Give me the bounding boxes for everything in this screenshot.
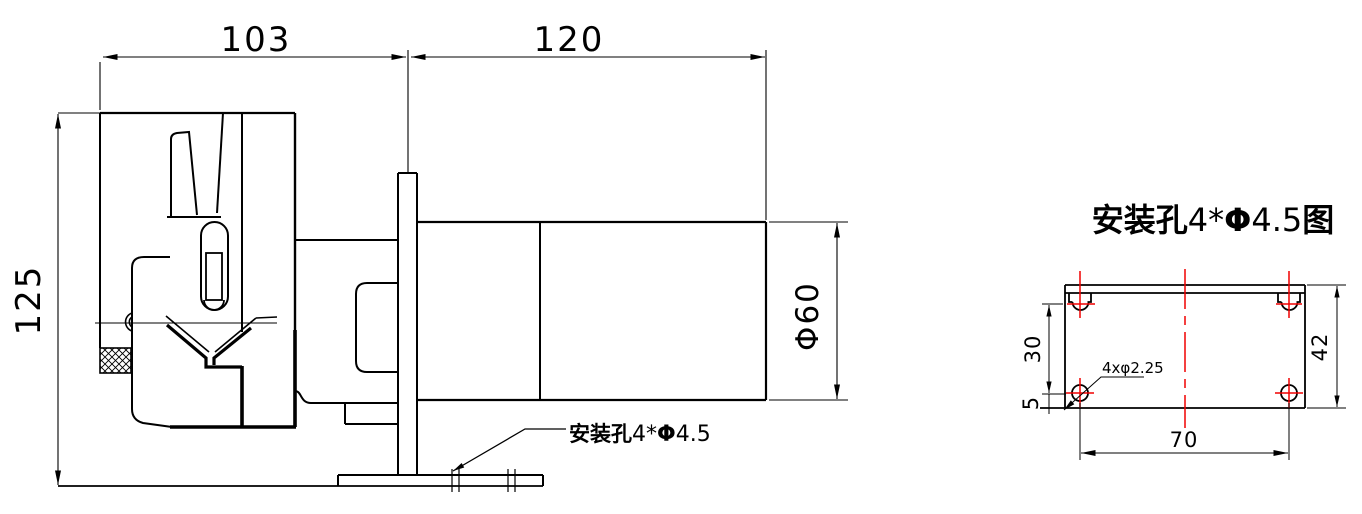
technical-drawing-canvas: 103 120 125 Φ60 安装孔4*Φ4.5 安装孔4*Φ4.5图 30 …	[0, 0, 1362, 514]
leader-label-hole-size: 4xφ2.25	[1102, 359, 1164, 377]
dim-head-width: 103	[221, 20, 292, 60]
dim-bottom-edge-offset: 5	[1019, 396, 1043, 410]
hole-diagram-title: 安装孔4*Φ4.5图	[1092, 201, 1334, 239]
hatched-inlet-block	[100, 348, 131, 373]
dim-motor-diameter: Φ60	[790, 281, 826, 351]
leader-label-mounting-holes: 安装孔4*Φ4.5	[569, 422, 711, 447]
dim-overall-height: 125	[9, 265, 49, 336]
dim-motor-length: 120	[534, 20, 605, 60]
dim-hole-column-spacing: 70	[1170, 428, 1199, 452]
dim-plate-height: 42	[1308, 333, 1332, 362]
dim-hole-row-spacing: 30	[1021, 335, 1045, 364]
engineering-drawing-page: 103 120 125 Φ60 安装孔4*Φ4.5 安装孔4*Φ4.5图 30 …	[0, 0, 1362, 514]
